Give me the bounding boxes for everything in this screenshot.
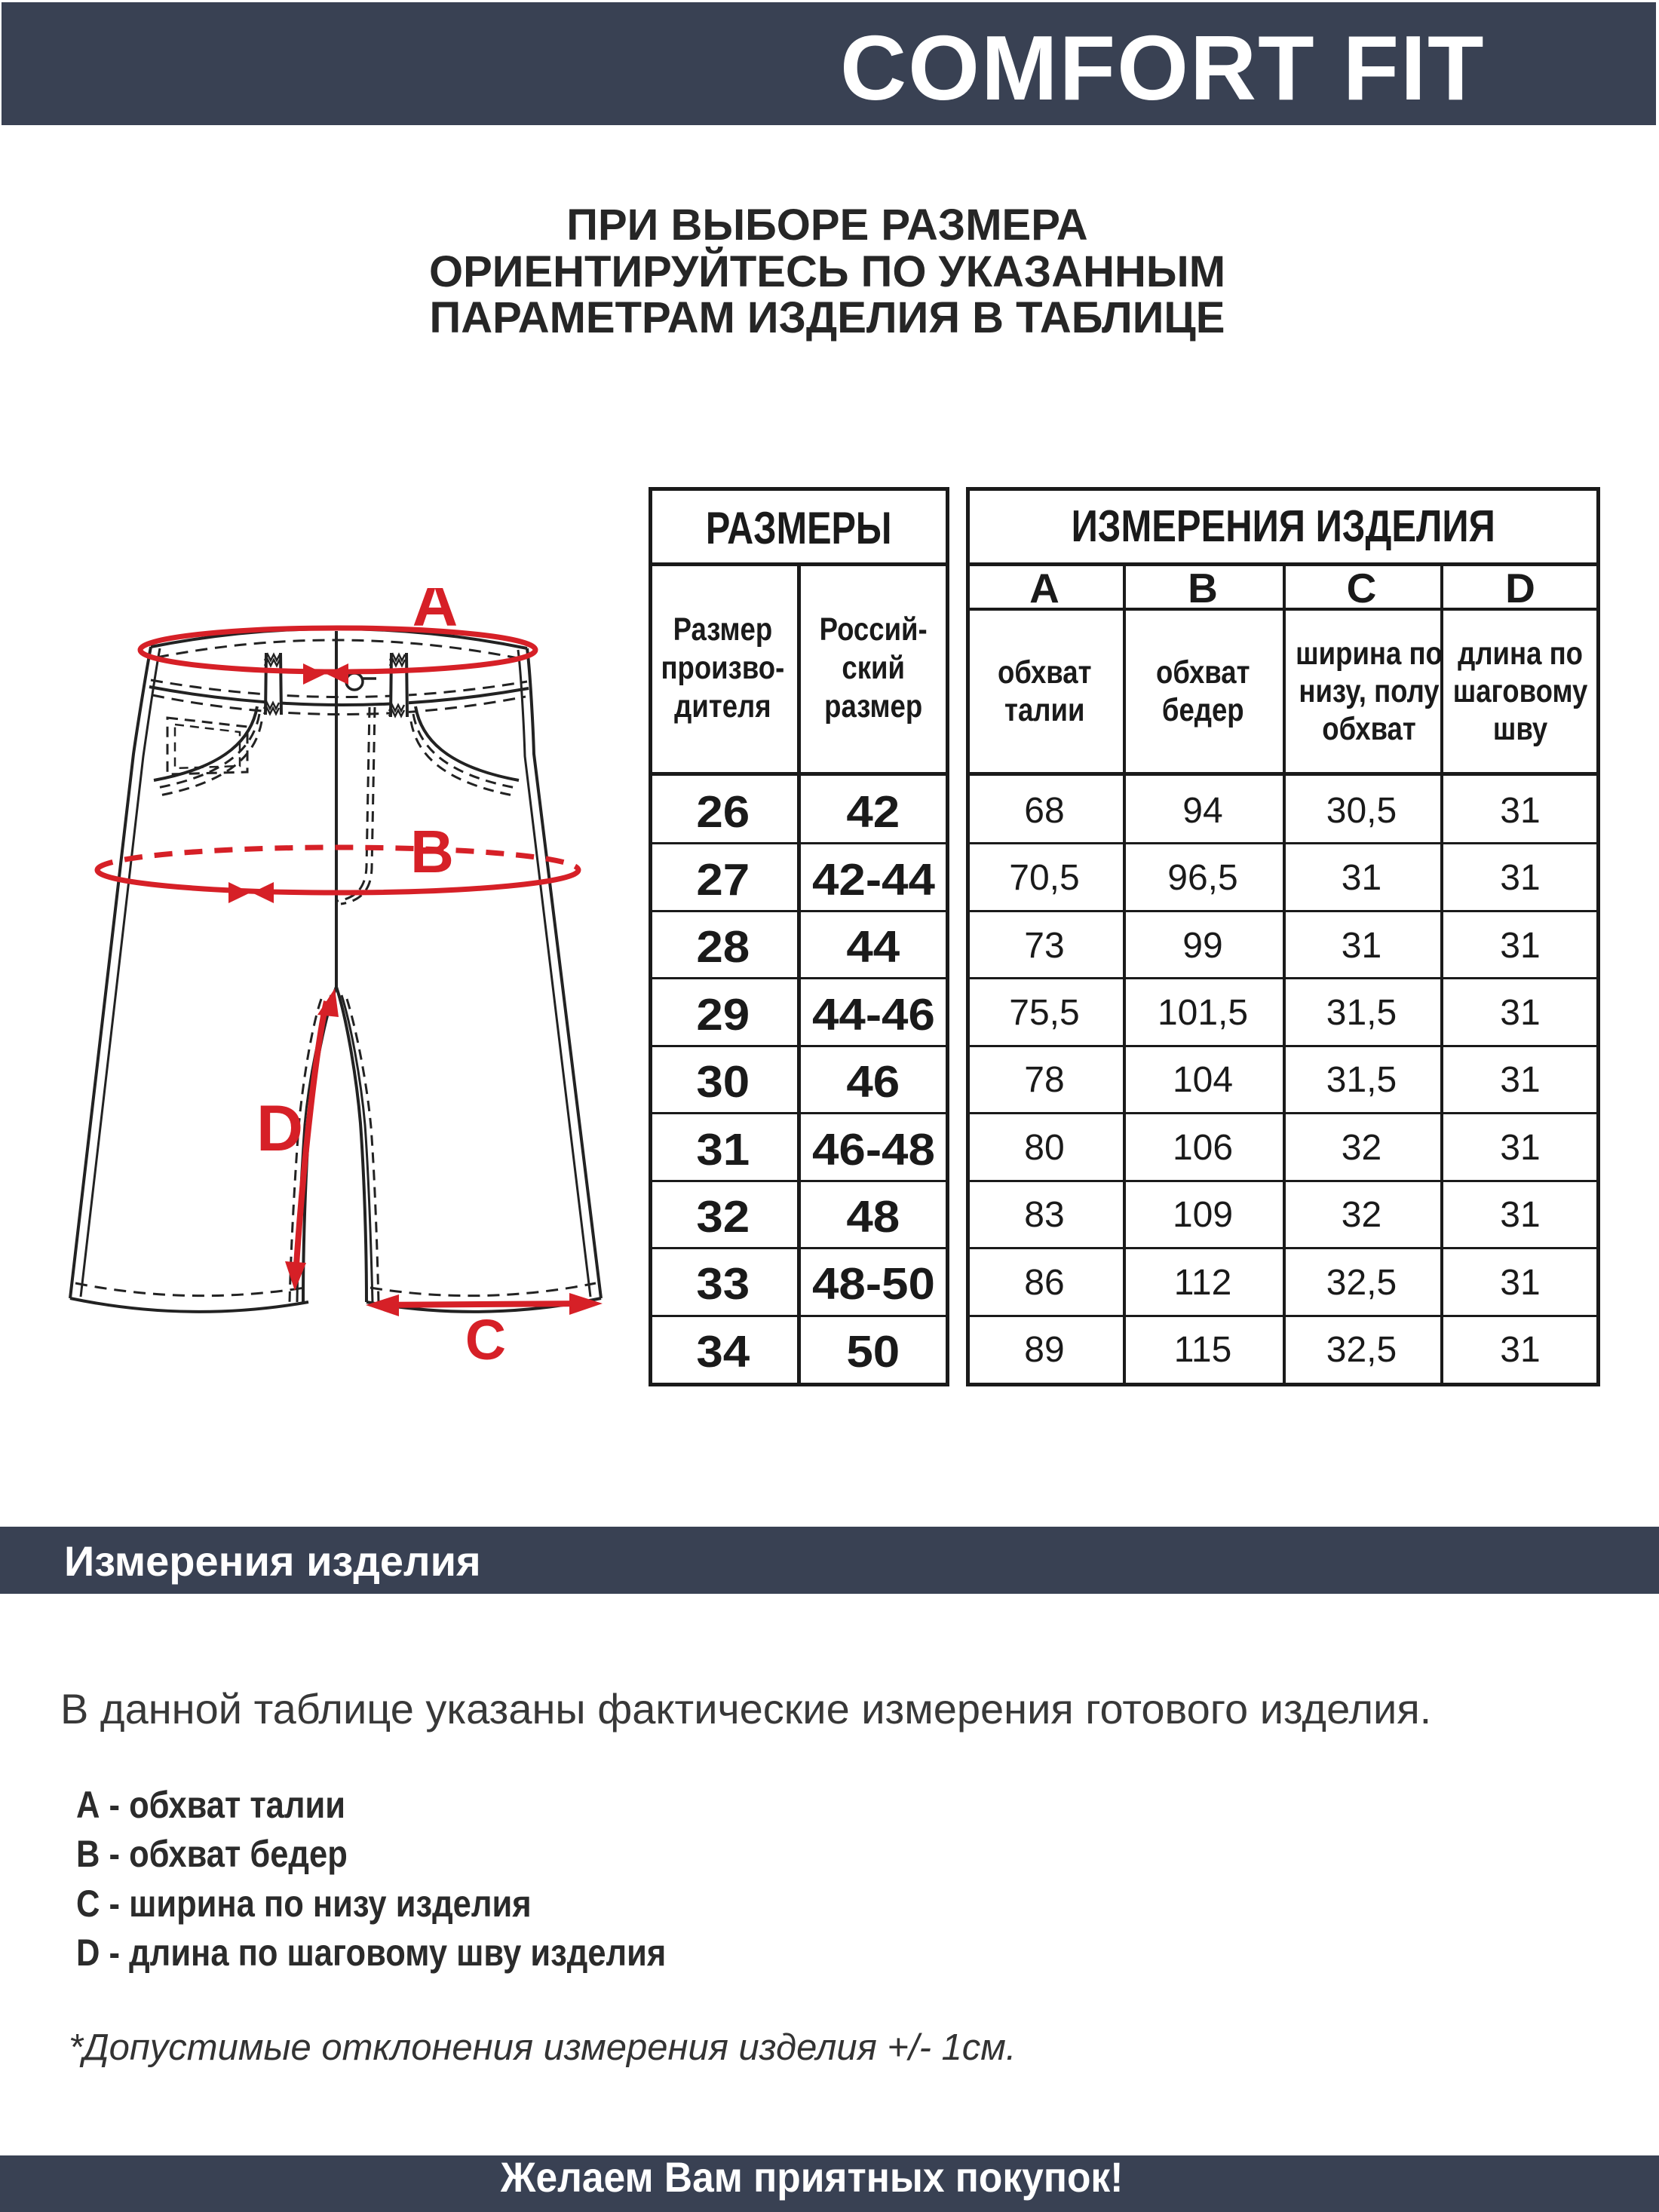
svg-text:A: A [412,588,458,639]
svg-text:D: D [256,1092,303,1165]
svg-text:B: B [410,818,454,885]
svg-text:C: C [465,1308,506,1371]
